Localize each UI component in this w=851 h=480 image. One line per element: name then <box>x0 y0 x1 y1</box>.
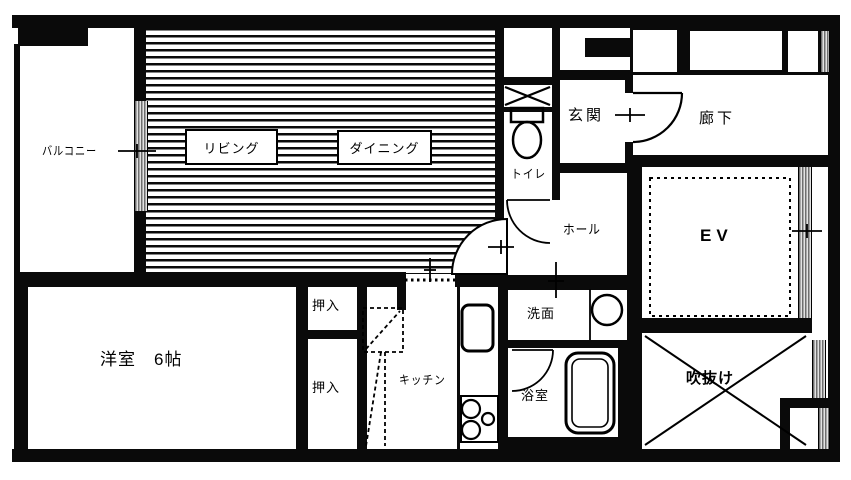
hall-label: ホール <box>563 223 601 236</box>
closet-upper-label: 押入 <box>312 299 340 312</box>
balcony-window-marker <box>118 144 156 158</box>
atrium-x-icon <box>645 336 806 445</box>
corridor-label: 廊下 <box>699 111 735 126</box>
toilet-label: トイレ <box>511 168 546 180</box>
balcony-label: バルコニー <box>42 145 97 157</box>
kitchen-opening-marker <box>424 258 436 282</box>
bathroom-label: 浴室 <box>521 389 549 402</box>
atrium-label: 吹抜け <box>686 371 734 386</box>
entrance-door-arc <box>633 93 682 142</box>
fridge-space-dashed <box>363 308 403 446</box>
kitchen-sink-icon <box>462 305 493 351</box>
toilet-icon <box>511 108 543 158</box>
bathroom-door-arc <box>512 350 553 391</box>
dining-label-tag: ダイニング <box>337 130 432 165</box>
elevator-label: EV <box>700 227 733 244</box>
entrance-label: 玄関 <box>568 108 604 123</box>
pipe-shaft-x-icon <box>505 87 550 105</box>
hall-washroom-door-marker <box>548 262 564 298</box>
living-label-tag: リビング <box>185 129 278 165</box>
washroom-label: 洗面 <box>527 307 555 320</box>
kitchen-label: キッチン <box>399 374 446 386</box>
ev-door-marker <box>792 224 822 238</box>
living-label: リビング <box>203 138 259 157</box>
ev-dashed-outline <box>650 178 790 316</box>
closet-lower-label: 押入 <box>312 381 340 394</box>
bathtub-icon <box>566 353 614 433</box>
western-room-label: 洋室 6帖 <box>100 351 182 368</box>
entrance-door-marker <box>615 108 645 122</box>
stove-icon <box>461 396 498 442</box>
dining-label: ダイニング <box>349 138 419 157</box>
washing-machine-icon <box>592 295 622 325</box>
toilet-door-arc <box>507 200 550 243</box>
floor-plan: バルコニー リビング ダイニング トイレ 玄関 廊下 ホール EV 洋室 6帖 … <box>0 0 851 480</box>
